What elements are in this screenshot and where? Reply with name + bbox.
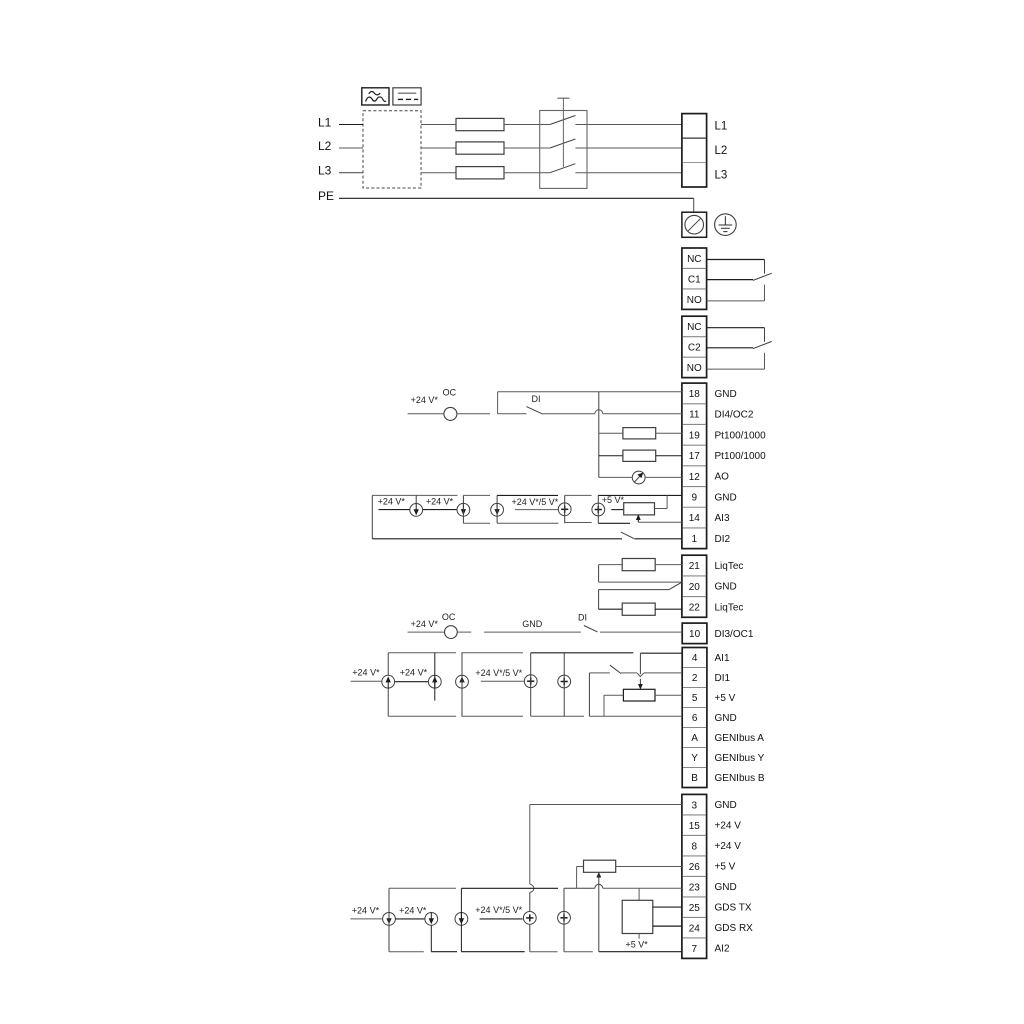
svg-text:21: 21 bbox=[689, 561, 701, 572]
svg-text:+24 V*: +24 V* bbox=[400, 668, 428, 678]
svg-text:24: 24 bbox=[689, 923, 701, 934]
svg-text:NO: NO bbox=[687, 363, 702, 374]
svg-text:+24 V*/5 V*: +24 V*/5 V* bbox=[475, 905, 522, 915]
svg-text:GENIbus A: GENIbus A bbox=[715, 733, 765, 744]
svg-text:GND: GND bbox=[715, 389, 737, 400]
svg-text:+24 V*: +24 V* bbox=[378, 496, 406, 506]
svg-text:LiqTec: LiqTec bbox=[715, 561, 744, 572]
svg-text:DI1: DI1 bbox=[715, 673, 731, 684]
svg-text:+24 V*/5 V*: +24 V*/5 V* bbox=[512, 497, 559, 507]
svg-text:DI: DI bbox=[532, 394, 541, 404]
svg-text:GND: GND bbox=[715, 582, 737, 593]
svg-text:GND: GND bbox=[715, 713, 737, 724]
svg-text:L1: L1 bbox=[318, 115, 332, 129]
svg-text:C1: C1 bbox=[688, 274, 701, 285]
svg-text:+24 V*: +24 V* bbox=[411, 395, 439, 405]
svg-text:8: 8 bbox=[692, 841, 698, 852]
svg-text:7: 7 bbox=[692, 944, 698, 955]
svg-text:+24 V*: +24 V* bbox=[411, 619, 439, 629]
svg-text:LiqTec: LiqTec bbox=[715, 602, 744, 613]
svg-text:5: 5 bbox=[692, 693, 698, 704]
svg-text:23: 23 bbox=[689, 882, 701, 893]
svg-text:+24 V*: +24 V* bbox=[426, 496, 454, 506]
svg-text:B: B bbox=[691, 773, 698, 784]
svg-text:L3: L3 bbox=[715, 170, 728, 182]
svg-text:+24 V*: +24 V* bbox=[399, 905, 427, 915]
svg-text:+5 V*: +5 V* bbox=[626, 940, 649, 950]
svg-text:25: 25 bbox=[689, 903, 701, 914]
svg-text:GENIbus Y: GENIbus Y bbox=[715, 753, 765, 764]
svg-text:+5 V: +5 V bbox=[715, 693, 736, 704]
svg-text:9: 9 bbox=[692, 492, 698, 503]
svg-text:Pt100/1000: Pt100/1000 bbox=[715, 430, 767, 441]
svg-text:+5 V*: +5 V* bbox=[602, 495, 625, 505]
svg-text:6: 6 bbox=[692, 713, 698, 724]
svg-text:14: 14 bbox=[689, 513, 701, 524]
svg-text:+24 V*/5 V*: +24 V*/5 V* bbox=[475, 668, 522, 678]
svg-text:+5 V: +5 V bbox=[715, 862, 736, 873]
svg-text:22: 22 bbox=[689, 603, 701, 614]
svg-text:DI2: DI2 bbox=[715, 534, 731, 545]
svg-text:OC: OC bbox=[443, 388, 457, 398]
svg-text:NO: NO bbox=[687, 295, 702, 306]
svg-text:AI3: AI3 bbox=[715, 513, 730, 524]
svg-text:11: 11 bbox=[689, 410, 700, 421]
svg-text:OC: OC bbox=[442, 612, 456, 622]
svg-text:10: 10 bbox=[689, 629, 701, 640]
svg-text:Y: Y bbox=[691, 753, 698, 764]
svg-text:GND: GND bbox=[522, 619, 543, 629]
svg-text:+24 V*: +24 V* bbox=[352, 905, 380, 915]
svg-text:GND: GND bbox=[715, 800, 737, 811]
svg-text:AI1: AI1 bbox=[715, 653, 730, 664]
svg-text:+24 V: +24 V bbox=[715, 841, 742, 852]
svg-text:2: 2 bbox=[692, 673, 698, 684]
svg-text:15: 15 bbox=[689, 821, 701, 832]
svg-text:GDS TX: GDS TX bbox=[715, 903, 752, 914]
svg-text:19: 19 bbox=[689, 430, 701, 441]
svg-text:18: 18 bbox=[689, 389, 701, 400]
svg-text:GENIbus B: GENIbus B bbox=[715, 773, 765, 784]
svg-text:AI2: AI2 bbox=[715, 944, 730, 955]
svg-text:26: 26 bbox=[689, 862, 701, 873]
svg-text:L3: L3 bbox=[318, 164, 332, 178]
svg-text:AO: AO bbox=[715, 472, 730, 483]
svg-text:L1: L1 bbox=[715, 121, 728, 133]
svg-text:GND: GND bbox=[715, 492, 737, 503]
svg-text:17: 17 bbox=[689, 451, 701, 462]
svg-text:GDS RX: GDS RX bbox=[715, 923, 754, 934]
svg-text:DI4/OC2: DI4/OC2 bbox=[715, 410, 754, 421]
svg-text:GND: GND bbox=[715, 882, 737, 893]
svg-text:L2: L2 bbox=[318, 139, 332, 153]
svg-text:NC: NC bbox=[687, 322, 701, 333]
svg-text:20: 20 bbox=[689, 582, 701, 593]
svg-text:A: A bbox=[691, 733, 698, 744]
svg-text:12: 12 bbox=[689, 472, 701, 483]
svg-text:DI3/OC1: DI3/OC1 bbox=[715, 629, 754, 640]
svg-text:L2: L2 bbox=[715, 145, 728, 157]
svg-text:+24 V*: +24 V* bbox=[352, 668, 380, 678]
svg-text:1: 1 bbox=[692, 534, 698, 545]
svg-text:DI: DI bbox=[578, 612, 587, 622]
svg-text:+24 V: +24 V bbox=[715, 821, 742, 832]
svg-text:3: 3 bbox=[692, 800, 698, 811]
svg-text:4: 4 bbox=[692, 653, 698, 664]
svg-text:C2: C2 bbox=[688, 343, 701, 354]
svg-text:PE: PE bbox=[318, 189, 334, 203]
svg-text:NC: NC bbox=[687, 254, 701, 265]
svg-text:Pt100/1000: Pt100/1000 bbox=[715, 451, 767, 462]
